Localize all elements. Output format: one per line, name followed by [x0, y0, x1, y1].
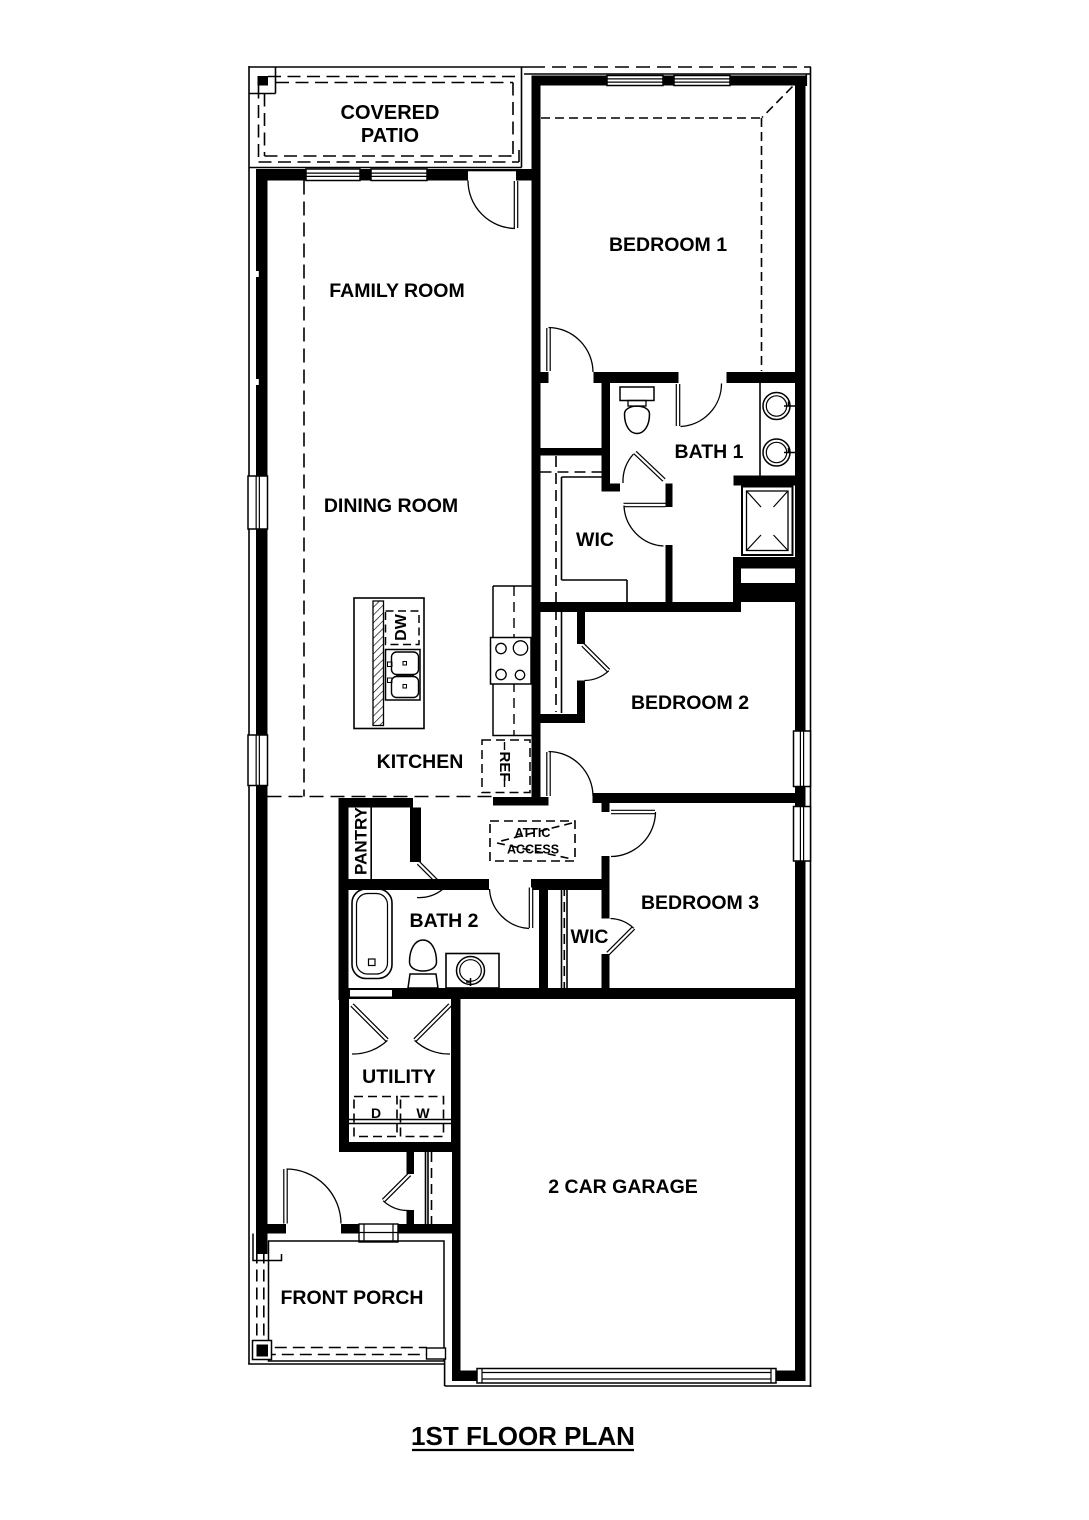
- svg-text:BEDROOM 2: BEDROOM 2: [631, 692, 749, 714]
- svg-text:D: D: [371, 1105, 381, 1121]
- svg-text:KITCHEN: KITCHEN: [377, 751, 464, 773]
- svg-text:FRONT PORCH: FRONT PORCH: [281, 1287, 424, 1309]
- svg-text:W: W: [416, 1105, 430, 1121]
- svg-text:1ST FLOOR PLAN: 1ST FLOOR PLAN: [411, 1421, 635, 1451]
- svg-text:2 CAR GARAGE: 2 CAR GARAGE: [548, 1176, 698, 1198]
- svg-text:WIC: WIC: [571, 926, 609, 948]
- svg-text:COVERED: COVERED: [341, 102, 440, 124]
- svg-text:BATH 1: BATH 1: [675, 441, 744, 463]
- svg-text:FAMILY ROOM: FAMILY ROOM: [329, 280, 464, 302]
- svg-text:PANTRY: PANTRY: [352, 806, 371, 875]
- svg-text:BEDROOM 3: BEDROOM 3: [641, 892, 759, 914]
- svg-text:ATTIC: ATTIC: [515, 826, 551, 840]
- svg-text:ACCESS: ACCESS: [507, 843, 559, 857]
- svg-text:DW: DW: [393, 613, 410, 641]
- svg-text:WIC: WIC: [576, 529, 614, 551]
- svg-text:DINING ROOM: DINING ROOM: [324, 495, 458, 517]
- svg-text:BEDROOM 1: BEDROOM 1: [609, 234, 727, 256]
- svg-text:PATIO: PATIO: [361, 125, 419, 147]
- svg-text:BATH 2: BATH 2: [410, 910, 479, 932]
- svg-text:REF: REF: [496, 752, 513, 782]
- svg-text:UTILITY: UTILITY: [362, 1066, 436, 1088]
